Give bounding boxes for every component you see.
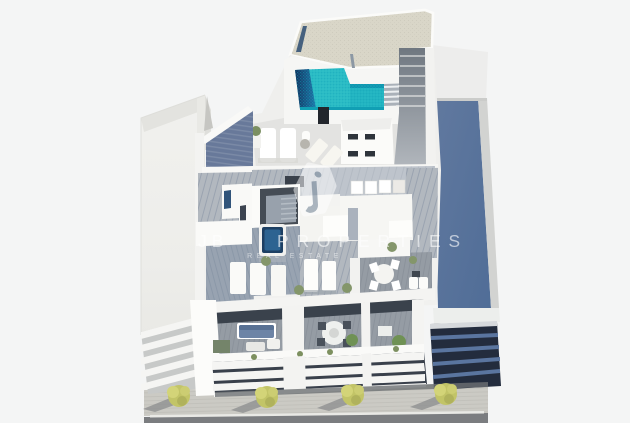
svg-text:PROPERTIES: PROPERTIES bbox=[277, 231, 468, 251]
svg-text:JB: JB bbox=[198, 231, 228, 251]
svg-text:REAL ESTATE: REAL ESTATE bbox=[247, 253, 343, 260]
